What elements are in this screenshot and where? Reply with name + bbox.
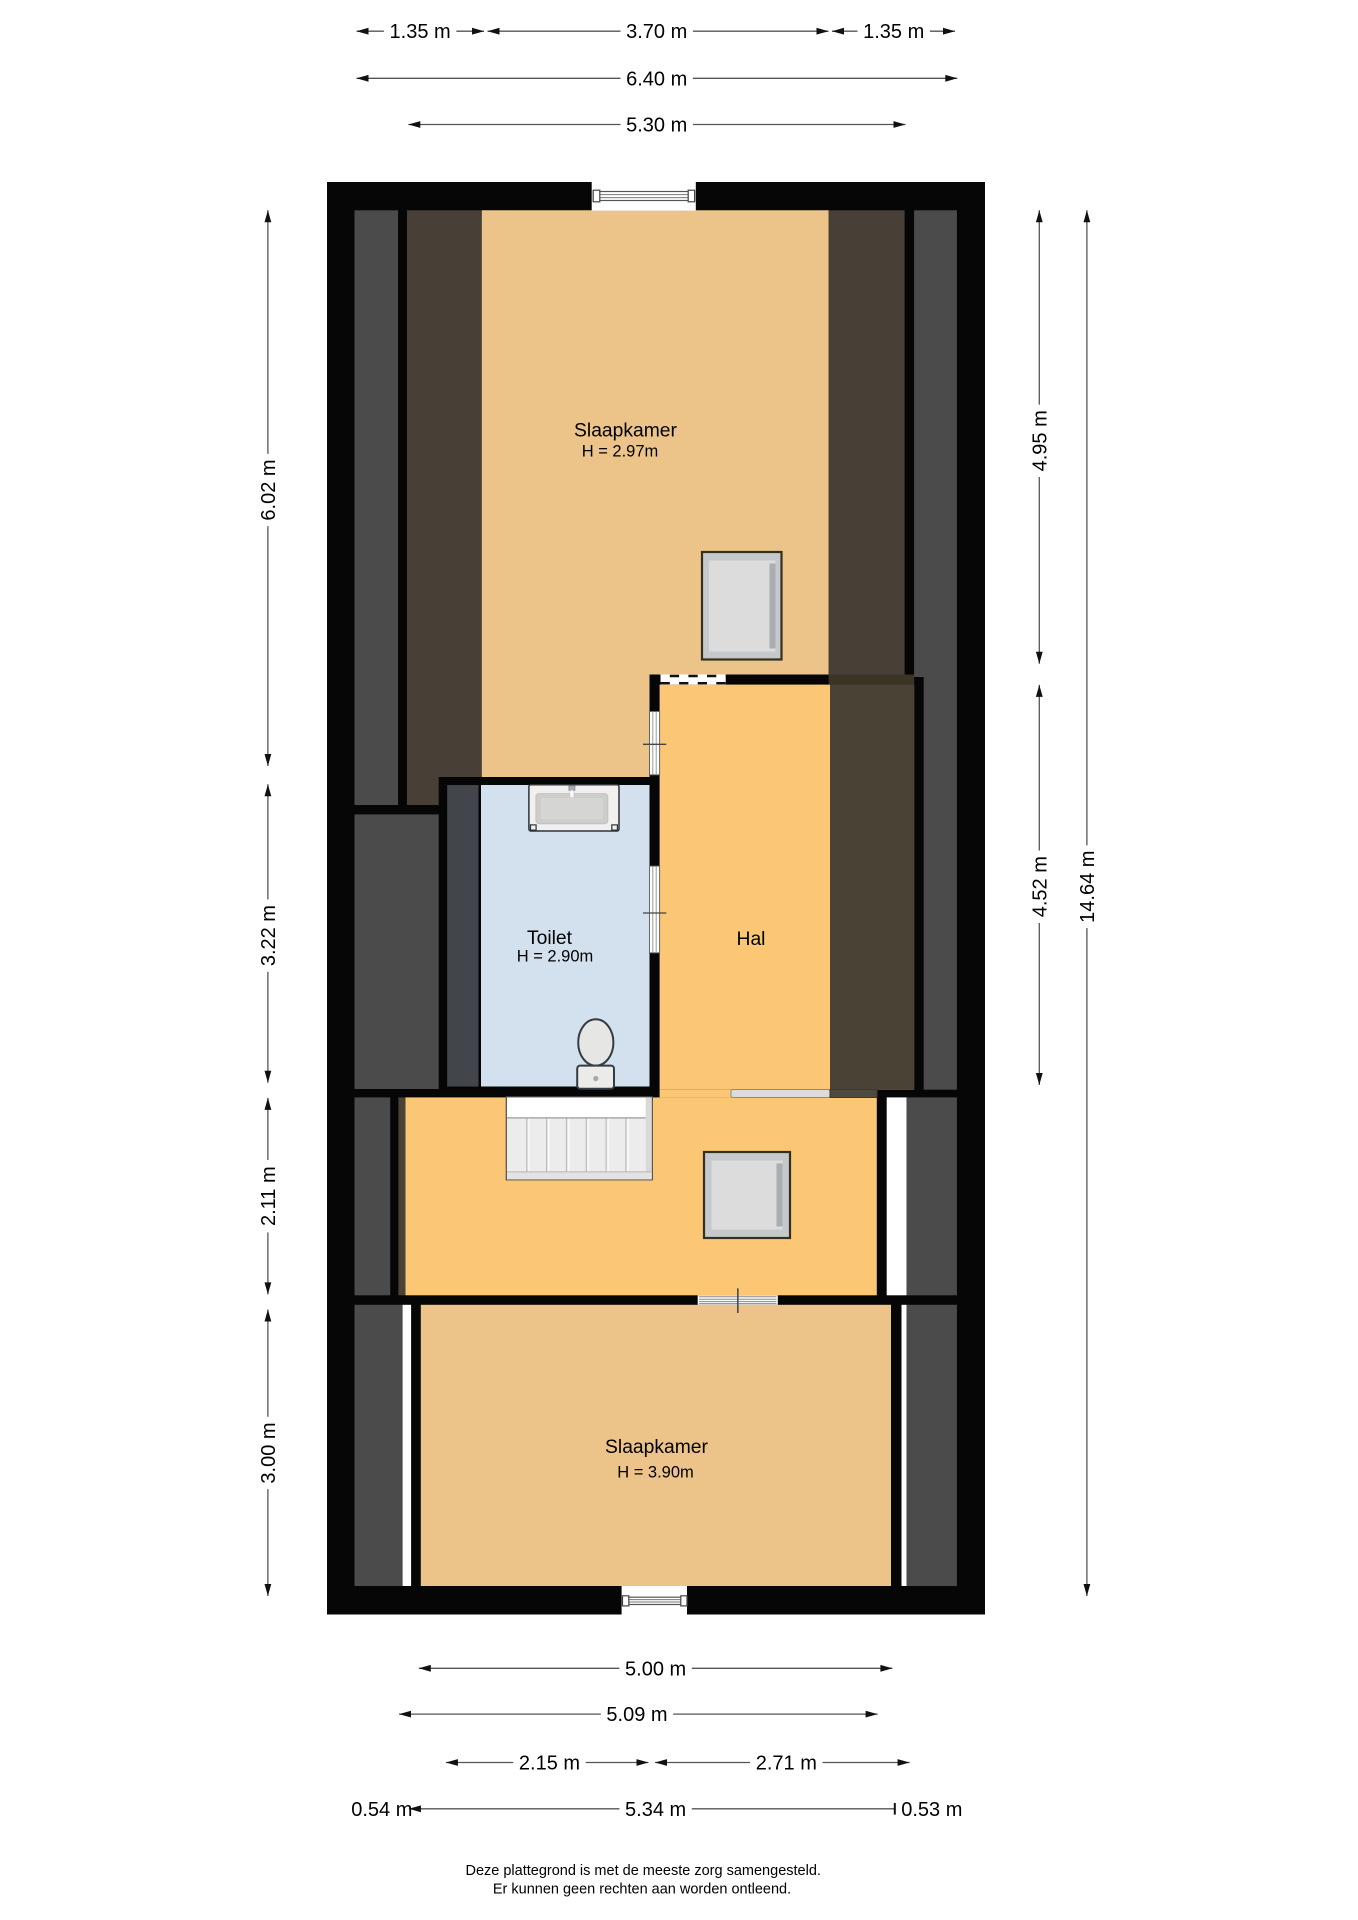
svg-text:H = 2.97m: H = 2.97m: [582, 443, 659, 461]
svg-text:1.35 m: 1.35 m: [390, 21, 451, 43]
svg-text:6.40 m: 6.40 m: [626, 68, 687, 90]
svg-text:4.52 m: 4.52 m: [1029, 856, 1051, 917]
svg-text:Toilet: Toilet: [527, 928, 573, 949]
svg-text:0.53 m: 0.53 m: [901, 1799, 962, 1821]
svg-text:2.15 m: 2.15 m: [519, 1753, 580, 1775]
svg-text:5.34 m: 5.34 m: [625, 1799, 686, 1821]
svg-text:Slaapkamer: Slaapkamer: [605, 1437, 708, 1458]
svg-text:4.95 m: 4.95 m: [1029, 410, 1051, 471]
svg-text:6.02 m: 6.02 m: [258, 459, 280, 520]
svg-text:1.35 m: 1.35 m: [863, 21, 924, 43]
svg-text:2.11 m: 2.11 m: [258, 1166, 280, 1226]
svg-text:H = 2.90m: H = 2.90m: [517, 948, 594, 966]
svg-text:Er kunnen geen rechten aan wor: Er kunnen geen rechten aan worden ontlee…: [493, 1881, 791, 1897]
svg-text:5.09 m: 5.09 m: [606, 1704, 667, 1726]
svg-text:3.22 m: 3.22 m: [258, 905, 280, 966]
svg-text:14.64 m: 14.64 m: [1077, 851, 1099, 923]
svg-text:H = 3.90m: H = 3.90m: [617, 1463, 694, 1481]
svg-text:3.00 m: 3.00 m: [258, 1422, 280, 1483]
svg-text:5.00 m: 5.00 m: [625, 1658, 686, 1680]
svg-text:Deze plattegrond is met de mee: Deze plattegrond is met de meeste zorg s…: [465, 1863, 820, 1879]
svg-text:0.54 m: 0.54 m: [351, 1799, 412, 1821]
svg-text:2.71 m: 2.71 m: [756, 1753, 817, 1775]
svg-text:5.30 m: 5.30 m: [626, 115, 687, 137]
svg-text:Hal: Hal: [737, 929, 766, 950]
svg-text:Slaapkamer: Slaapkamer: [574, 420, 677, 441]
svg-text:3.70 m: 3.70 m: [626, 21, 687, 43]
